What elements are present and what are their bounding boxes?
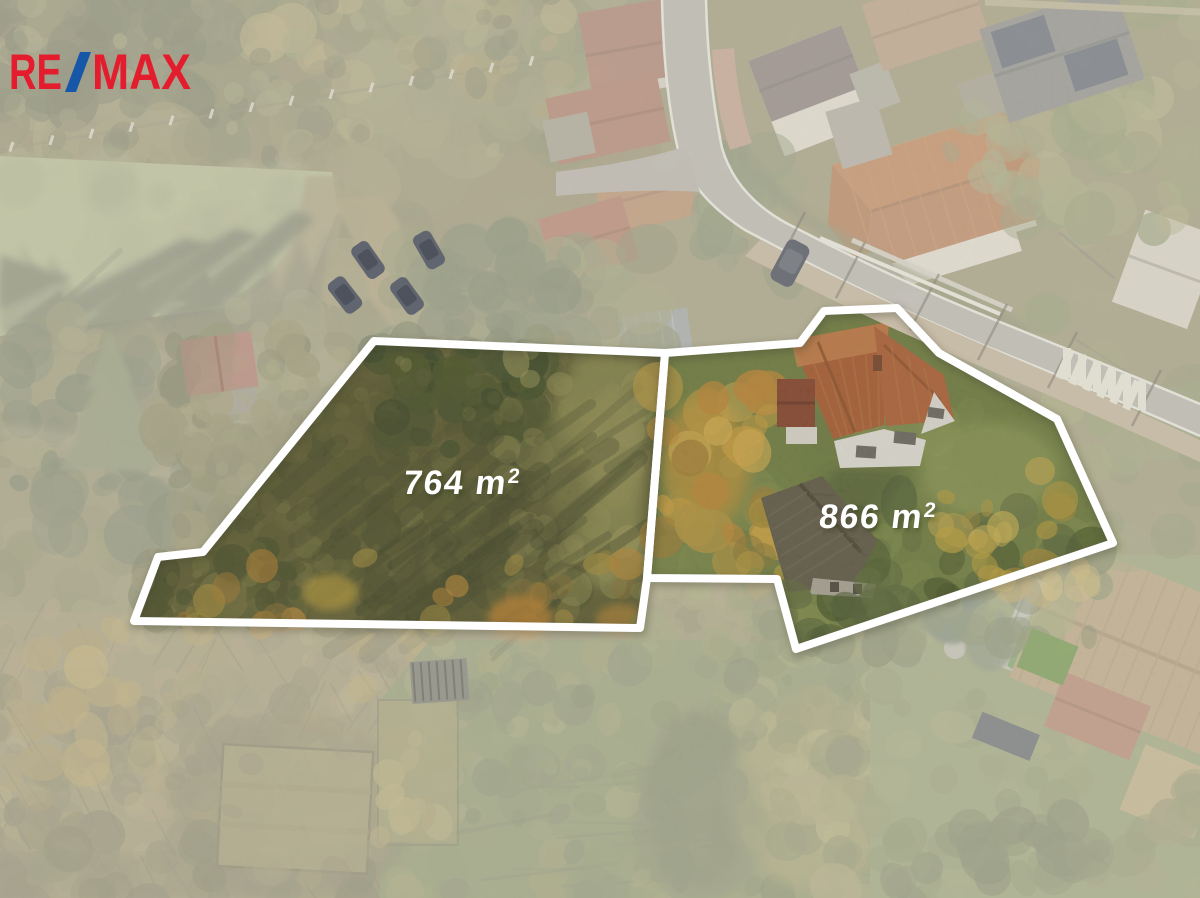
svg-text:866 m2: 866 m2	[817, 498, 939, 536]
svg-text:RE: RE	[9, 44, 62, 100]
svg-text:MAX: MAX	[92, 44, 191, 100]
svg-text:764 m2: 764 m2	[401, 464, 523, 502]
